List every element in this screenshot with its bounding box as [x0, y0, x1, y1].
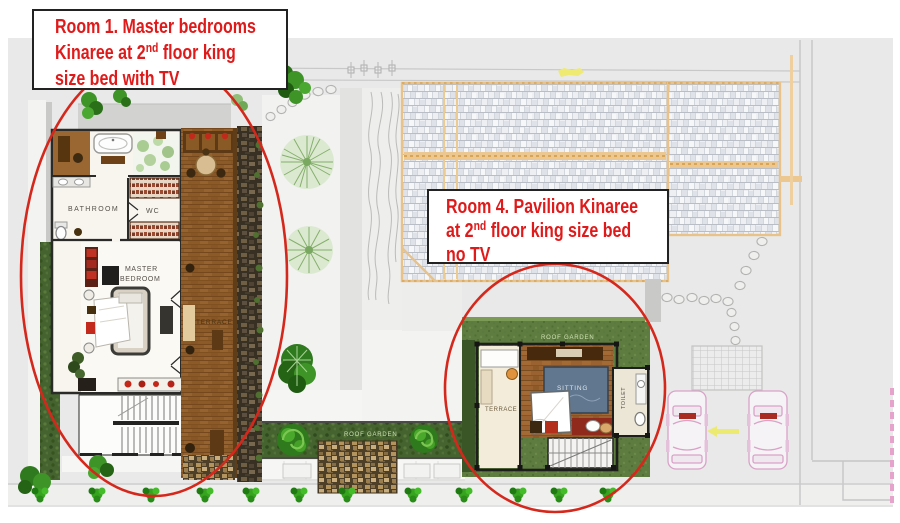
- svg-text:TERRACE: TERRACE: [196, 319, 233, 326]
- svg-text:ROOF GARDEN: ROOF GARDEN: [344, 432, 397, 438]
- svg-text:BATHROOM: BATHROOM: [68, 206, 119, 213]
- svg-text:size bed with TV: size bed with TV: [55, 67, 179, 89]
- svg-text:BEDROOM: BEDROOM: [120, 276, 160, 283]
- svg-text:TERRACE: TERRACE: [485, 407, 517, 413]
- svg-text:WC: WC: [146, 208, 160, 215]
- svg-text:Room 1. Master bedrooms: Room 1. Master bedrooms: [55, 15, 256, 37]
- svg-text:MASTER: MASTER: [125, 266, 158, 273]
- svg-text:Kinaree at 2nd floor king: Kinaree at 2nd floor king: [55, 41, 236, 63]
- svg-text:TOILET: TOILET: [621, 387, 627, 409]
- svg-text:ROOF GARDEN: ROOF GARDEN: [541, 335, 594, 341]
- svg-text:Room 4. Pavilion Kinaree: Room 4. Pavilion Kinaree: [446, 195, 638, 217]
- svg-text:no TV: no TV: [446, 243, 490, 265]
